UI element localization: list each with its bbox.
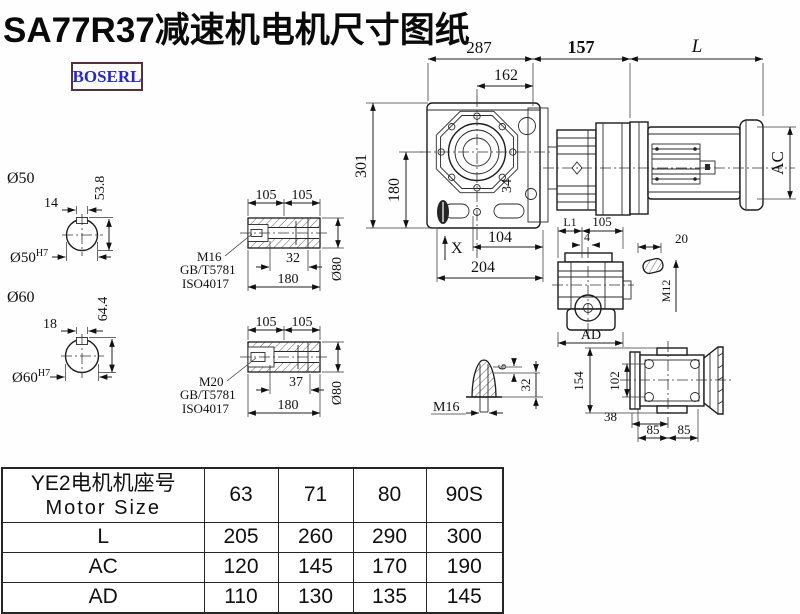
dim-len-a: 180 <box>278 272 299 287</box>
rear-adapter-flange <box>704 347 723 414</box>
bushing-b-detail: 105 105 M20 GB/T5781 ISO4017 37 180 Ø80 <box>180 315 345 417</box>
label-fit-60: Ø60H7 <box>12 368 50 386</box>
rear-view-body <box>640 355 704 406</box>
cell-AD-71: 130 <box>278 582 353 613</box>
dim-105-side: 105 <box>592 214 612 229</box>
dim-len-b: 180 <box>278 398 299 413</box>
dim-105-b2: 105 <box>292 315 313 330</box>
dim-102: 102 <box>607 371 622 391</box>
dim-depth-a: 32 <box>286 251 300 266</box>
dim-AC: AC <box>768 151 787 175</box>
table-row: AD 110 130 135 145 <box>2 582 503 613</box>
shaft-key <box>642 257 665 274</box>
dim-85-2: 85 <box>678 422 691 437</box>
dim-depth-b: 37 <box>289 375 303 390</box>
cell-AC-63: 120 <box>204 552 278 582</box>
shaft-hole-50-detail: Ø50 14 53.8 Ø50H7 <box>7 170 113 266</box>
dim-287: 287 <box>466 38 492 57</box>
dim-301: 301 <box>353 154 370 178</box>
table-row: AC 120 145 170 190 <box>2 552 503 582</box>
dim-180: 180 <box>386 178 403 202</box>
cell-AD-80: 135 <box>353 582 426 613</box>
col-80: 80 <box>353 468 426 522</box>
cell-AC-71: 145 <box>278 552 353 582</box>
motor-size-table: YE2电机机座号 Motor Size 63 71 80 90S L 205 2… <box>1 467 504 614</box>
table-row: L 205 260 290 300 <box>2 522 503 552</box>
dim-38: 38 <box>604 409 617 424</box>
cell-AC-80: 170 <box>353 552 426 582</box>
dim-162: 162 <box>494 67 518 84</box>
dim-34: 34 <box>500 179 515 193</box>
dim-AD: AD <box>581 328 601 343</box>
label-dia60: Ø60 <box>7 289 35 306</box>
header-cn: YE2电机机座号 <box>3 471 204 496</box>
dim-6: 6 <box>495 364 509 370</box>
gear-unit-rear-view: 154 102 38 85 85 <box>571 341 734 442</box>
dim-32-plug: 32 <box>518 379 533 392</box>
dim-L: L <box>691 36 703 57</box>
dim-X: X <box>451 240 463 257</box>
dim-20: 20 <box>675 231 688 246</box>
dim-85-1: 85 <box>647 422 660 437</box>
label-std2-a: ISO4017 <box>182 276 229 291</box>
motor-adapter <box>596 123 630 215</box>
shaft-hole-60-detail: Ø60 18 64.4 Ø60H7 <box>7 289 116 386</box>
cell-AD-90S: 145 <box>426 582 503 613</box>
dim-dia-b: Ø80 <box>330 381 345 405</box>
dim-dia-a: Ø80 <box>330 257 345 281</box>
dim-104: 104 <box>488 229 512 246</box>
label-thread-plug: M16 <box>433 400 459 415</box>
bushing-a-detail: 105 105 M16 GB/T5781 ISO4017 32 180 Ø80 <box>180 188 345 291</box>
plug-cone <box>472 360 496 397</box>
col-90S: 90S <box>426 468 503 522</box>
row-label-L: L <box>2 522 204 552</box>
label-fit-50: Ø50H7 <box>10 248 48 266</box>
label-thread-m12: M12 <box>659 280 673 303</box>
dim-204: 204 <box>471 259 495 276</box>
dim-key-height-60: 64.4 <box>96 297 111 322</box>
dim-key-height-50: 53.8 <box>93 176 108 201</box>
dim-105-a2: 105 <box>292 188 313 203</box>
side-view-body <box>558 262 623 309</box>
dim-105-a1: 105 <box>256 188 277 203</box>
breather-plug-detail: 6 32 M16 <box>431 359 543 415</box>
label-std1-a: GB/T5781 <box>180 262 236 277</box>
fan-cover <box>740 120 763 210</box>
gear-unit-side-view: L1 105 4 AD 20 M12 <box>552 214 688 347</box>
cell-L-90S: 300 <box>426 522 503 552</box>
row-label-AC: AC <box>2 552 204 582</box>
cell-L-63: 205 <box>204 522 278 552</box>
header-en: Motor Size <box>3 496 204 520</box>
col-71: 71 <box>278 468 353 522</box>
row-label-AD: AD <box>2 582 204 613</box>
dim-157: 157 <box>568 37 595 57</box>
motor-body <box>648 127 740 199</box>
cell-L-80: 290 <box>353 522 426 552</box>
brake-housing <box>557 130 596 210</box>
dim-L1: L1 <box>563 215 576 229</box>
label-std1-b: GB/T5781 <box>180 387 236 402</box>
cell-AD-63: 110 <box>204 582 278 613</box>
cell-L-71: 260 <box>278 522 353 552</box>
label-std2-b: ISO4017 <box>182 401 229 416</box>
table-header-motor-size: YE2电机机座号 Motor Size <box>2 468 204 522</box>
label-dia50: Ø50 <box>7 170 35 187</box>
cell-AC-90S: 190 <box>426 552 503 582</box>
dim-key-width-60: 18 <box>43 317 57 332</box>
dim-105-b1: 105 <box>256 315 277 330</box>
col-63: 63 <box>204 468 278 522</box>
dim-4: 4 <box>584 230 590 244</box>
dim-154: 154 <box>571 371 586 391</box>
dim-key-width-50: 14 <box>44 196 58 211</box>
